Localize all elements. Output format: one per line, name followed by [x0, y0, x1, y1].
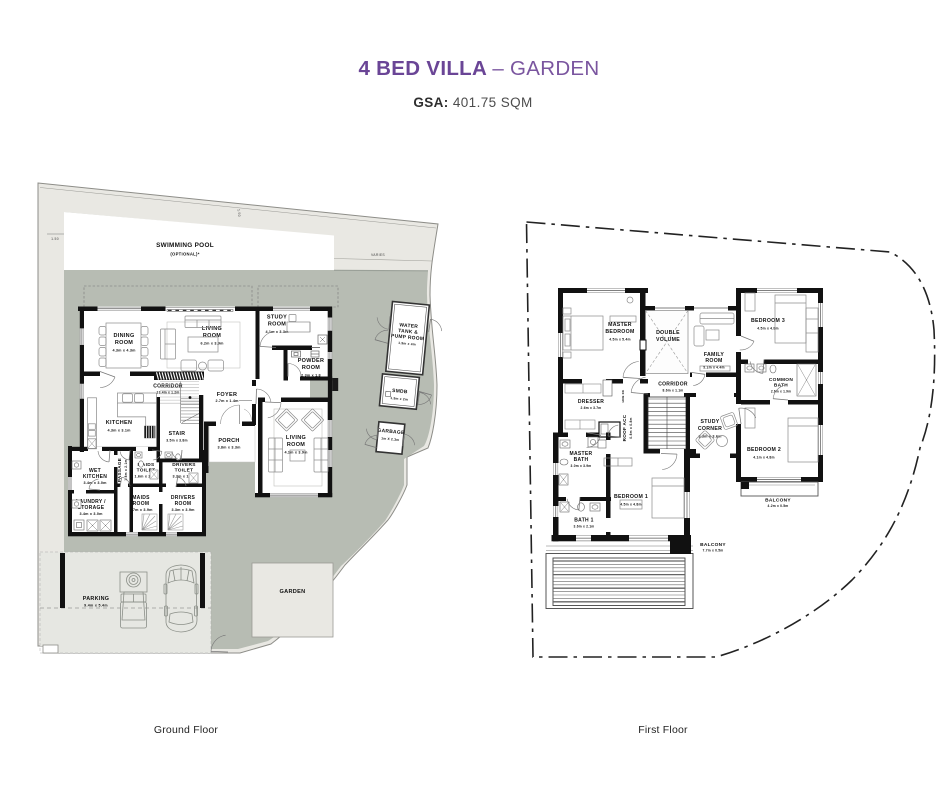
- svg-text:ROOM: ROOM: [705, 358, 722, 364]
- svg-text:ROOM: ROOM: [287, 442, 305, 448]
- svg-text:BEDROOM 1: BEDROOM 1: [614, 494, 648, 500]
- svg-text:3.6m x 2.1m: 3.6m x 2.1m: [574, 525, 595, 529]
- svg-text:4.1m x 4.8m: 4.1m x 4.8m: [753, 455, 774, 459]
- svg-text:STUDY: STUDY: [700, 419, 719, 425]
- svg-text:BALCONY: BALCONY: [765, 498, 791, 504]
- svg-text:HOB DK: HOB DK: [621, 390, 625, 403]
- svg-text:COMMON: COMMON: [769, 377, 793, 383]
- svg-text:POWDER: POWDER: [298, 358, 325, 364]
- svg-text:4.3m x 3.1m: 4.3m x 3.1m: [107, 428, 131, 432]
- svg-text:1.50: 1.50: [51, 237, 59, 241]
- svg-text:3.3m x 3.9m: 3.3m x 3.9m: [171, 508, 195, 512]
- svg-text:LIVING: LIVING: [202, 326, 222, 332]
- svg-text:2.7m x 1.4m: 2.7m x 1.4m: [215, 399, 239, 403]
- svg-text:BATH: BATH: [774, 383, 788, 389]
- svg-text:4.5m x 4.8m: 4.5m x 4.8m: [757, 326, 778, 330]
- svg-text:LIVING: LIVING: [286, 435, 306, 441]
- svg-text:ROOM: ROOM: [133, 501, 150, 507]
- svg-text:PORCH: PORCH: [218, 438, 239, 444]
- svg-text:CORNER: CORNER: [698, 426, 722, 432]
- svg-text:DINING: DINING: [113, 333, 134, 339]
- svg-text:3.0m x 3.9m: 3.0m x 3.9m: [571, 464, 592, 468]
- svg-text:BEDROOM: BEDROOM: [605, 329, 634, 335]
- svg-text:3.5m x 3.8m: 3.5m x 3.8m: [166, 438, 187, 442]
- svg-text:2.6m x 1.9m: 2.6m x 1.9m: [771, 390, 791, 394]
- svg-text:2.6m x 3.7m: 2.6m x 3.7m: [581, 406, 602, 410]
- svg-text:3.7m x 3.9m: 3.7m x 3.9m: [129, 508, 153, 512]
- svg-text:0.8m x 0.8m: 0.8m x 0.8m: [629, 417, 633, 438]
- svg-text:9.4m x 5.4m: 9.4m x 5.4m: [84, 604, 108, 608]
- svg-text:1.8m x 2.1m: 1.8m x 2.1m: [124, 459, 128, 480]
- svg-text:3.4m x 3.0m: 3.4m x 3.0m: [83, 481, 107, 485]
- svg-text:4.2m x 0.5m: 4.2m x 0.5m: [768, 504, 789, 508]
- svg-text:2.3m x 1.8: 2.3m x 1.8: [301, 373, 321, 377]
- svg-text:PARKING: PARKING: [83, 596, 110, 602]
- svg-text:TOILET: TOILET: [175, 468, 194, 474]
- svg-text:KITCHEN: KITCHEN: [83, 474, 107, 480]
- svg-text:ROOM: ROOM: [268, 322, 286, 328]
- svg-text:4.3m x 4.3m: 4.3m x 4.3m: [112, 348, 136, 352]
- svg-text:SWIMMING POOL: SWIMMING POOL: [156, 242, 214, 249]
- svg-text:4 BED VILLA – GARDEN: 4 BED VILLA – GARDEN: [358, 57, 599, 80]
- svg-text:STUDY: STUDY: [267, 315, 287, 321]
- svg-text:ROOM: ROOM: [203, 333, 221, 339]
- svg-text:ROOM: ROOM: [302, 365, 320, 371]
- svg-text:ROOM: ROOM: [115, 340, 133, 346]
- svg-text:STORAGE: STORAGE: [78, 505, 105, 511]
- svg-text:VARIES: VARIES: [371, 253, 385, 257]
- svg-text:FOYER: FOYER: [217, 392, 237, 398]
- svg-text:VOLUME: VOLUME: [656, 337, 680, 343]
- svg-text:4.1m x 3.9m: 4.1m x 3.9m: [284, 450, 308, 454]
- svg-text:Ground Floor: Ground Floor: [154, 724, 219, 736]
- svg-text:DOUBLE: DOUBLE: [656, 330, 680, 336]
- svg-text:KITCHEN: KITCHEN: [106, 420, 133, 426]
- svg-text:6.2m x 3.9m: 6.2m x 3.9m: [200, 341, 224, 345]
- svg-text:BEDROOM 2: BEDROOM 2: [747, 447, 781, 453]
- svg-text:MASTER: MASTER: [608, 322, 632, 328]
- svg-text:1.50: 1.50: [237, 209, 242, 217]
- svg-text:ROOF ACC: ROOF ACC: [622, 414, 627, 441]
- svg-text:3.8m x 3.3m: 3.8m x 3.3m: [217, 446, 241, 450]
- svg-text:GARDEN: GARDEN: [279, 589, 305, 595]
- svg-text:DRESSER: DRESSER: [578, 399, 604, 405]
- svg-text:(OPTIONAL)*: (OPTIONAL)*: [170, 252, 199, 257]
- svg-text:8.6m x 1.1m: 8.6m x 1.1m: [663, 389, 684, 393]
- svg-text:BATH 1: BATH 1: [574, 518, 594, 524]
- svg-text:BEDROOM 3: BEDROOM 3: [751, 318, 785, 324]
- svg-text:4.5m x 5.4m: 4.5m x 5.4m: [609, 337, 630, 341]
- svg-text:STAIR: STAIR: [169, 431, 186, 437]
- svg-text:BATH: BATH: [574, 457, 589, 463]
- svg-text:4.5m x 4.8m: 4.5m x 4.8m: [620, 502, 641, 506]
- svg-text:GSA: 401.75 SQM: GSA: 401.75 SQM: [413, 95, 532, 110]
- svg-text:First Floor: First Floor: [638, 724, 688, 736]
- svg-text:DRIVERS: DRIVERS: [172, 462, 196, 468]
- svg-text:ROOM: ROOM: [175, 501, 192, 507]
- svg-text:BALCONY: BALCONY: [700, 542, 726, 548]
- svg-text:7.7m x 0.5m: 7.7m x 0.5m: [703, 549, 724, 553]
- svg-text:3.4m x 3.0m: 3.4m x 3.0m: [79, 512, 103, 516]
- svg-text:CORRIDOR: CORRIDOR: [658, 382, 688, 388]
